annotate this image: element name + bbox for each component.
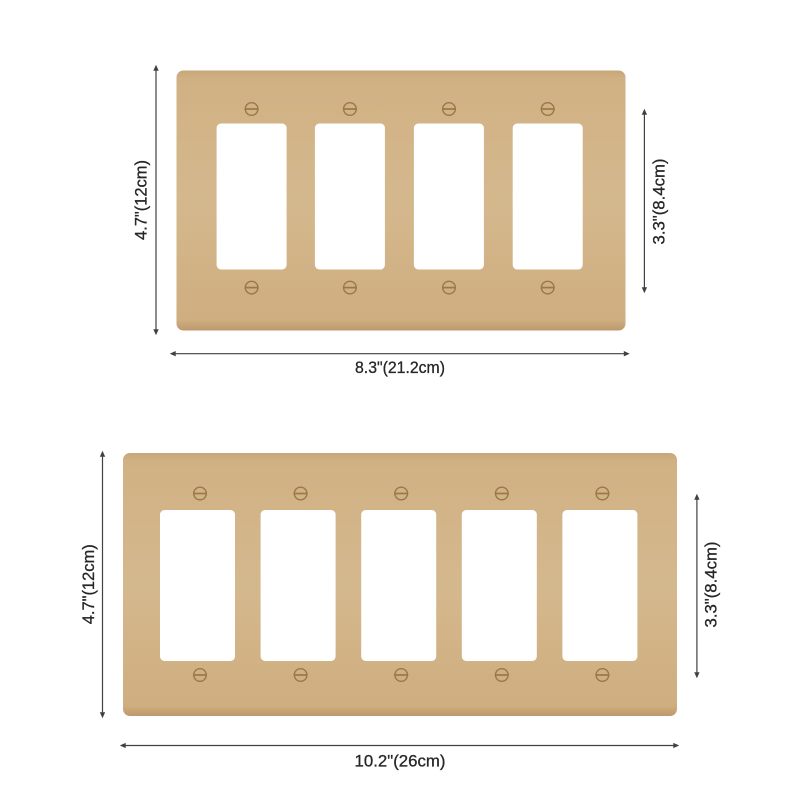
svg-text:10.2"(26cm): 10.2"(26cm) (355, 752, 446, 771)
svg-text:4.7"(12cm): 4.7"(12cm) (132, 160, 151, 240)
svg-text:4.7"(12cm): 4.7"(12cm) (79, 544, 98, 624)
svg-text:3.3"(8.4cm): 3.3"(8.4cm) (702, 542, 721, 628)
svg-text:8.3"(21.2cm): 8.3"(21.2cm) (355, 358, 445, 377)
svg-text:3.3"(8.4cm): 3.3"(8.4cm) (650, 159, 669, 245)
